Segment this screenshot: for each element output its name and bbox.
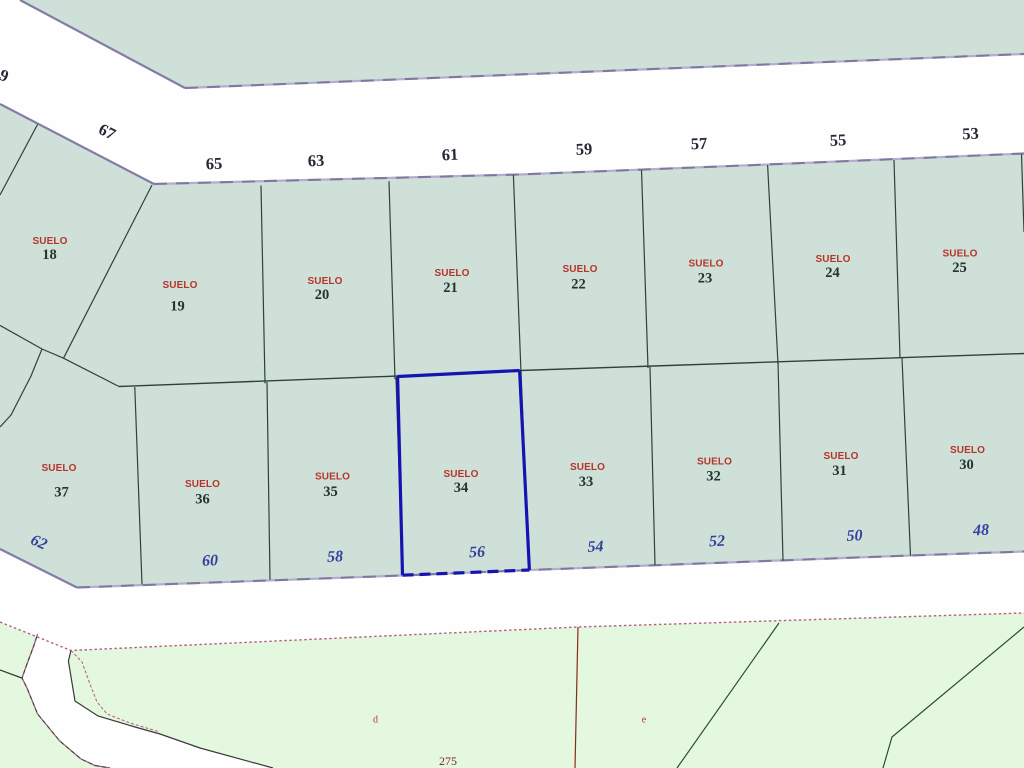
svg-text:22: 22	[571, 277, 586, 293]
svg-text:SUELO: SUELO	[563, 264, 598, 275]
svg-text:21: 21	[443, 280, 458, 296]
svg-text:56: 56	[469, 544, 486, 562]
svg-text:25: 25	[952, 260, 967, 276]
svg-text:36: 36	[195, 492, 210, 508]
svg-text:SUELO: SUELO	[950, 445, 985, 456]
svg-text:55: 55	[829, 130, 846, 150]
svg-text:SUELO: SUELO	[33, 236, 68, 247]
svg-text:SUELO: SUELO	[42, 463, 77, 474]
svg-text:58: 58	[327, 548, 344, 566]
svg-text:59: 59	[575, 139, 592, 159]
svg-text:SUELO: SUELO	[689, 259, 724, 270]
svg-text:63: 63	[307, 151, 324, 171]
svg-text:34: 34	[454, 480, 469, 496]
svg-text:d: d	[373, 715, 378, 726]
svg-text:32: 32	[706, 469, 721, 485]
svg-text:24: 24	[825, 265, 840, 281]
svg-text:50: 50	[846, 527, 863, 545]
svg-text:SUELO: SUELO	[697, 457, 732, 468]
svg-text:SUELO: SUELO	[824, 451, 859, 462]
svg-text:SUELO: SUELO	[315, 472, 350, 483]
svg-text:60: 60	[202, 552, 219, 570]
svg-text:e: e	[642, 715, 647, 726]
svg-text:SUELO: SUELO	[943, 249, 978, 260]
svg-text:SUELO: SUELO	[816, 254, 851, 265]
svg-text:53: 53	[962, 124, 979, 144]
svg-text:19: 19	[170, 299, 185, 315]
svg-text:61: 61	[441, 145, 458, 165]
svg-text:52: 52	[709, 533, 726, 551]
svg-text:SUELO: SUELO	[185, 479, 220, 490]
svg-text:SUELO: SUELO	[435, 268, 470, 279]
svg-text:37: 37	[54, 485, 69, 501]
svg-text:65: 65	[205, 154, 222, 174]
svg-text:57: 57	[690, 134, 707, 154]
svg-text:48: 48	[972, 522, 990, 540]
svg-text:35: 35	[323, 484, 338, 500]
svg-text:30: 30	[959, 457, 974, 473]
svg-text:SUELO: SUELO	[308, 276, 343, 287]
svg-text:33: 33	[579, 474, 594, 490]
svg-text:20: 20	[315, 287, 330, 303]
svg-text:31: 31	[832, 463, 847, 479]
svg-text:SUELO: SUELO	[163, 280, 198, 291]
svg-text:54: 54	[587, 538, 604, 556]
svg-text:275: 275	[439, 754, 457, 768]
svg-text:18: 18	[42, 247, 57, 263]
svg-text:23: 23	[698, 271, 713, 287]
svg-text:SUELO: SUELO	[570, 462, 605, 473]
svg-text:SUELO: SUELO	[444, 469, 479, 480]
